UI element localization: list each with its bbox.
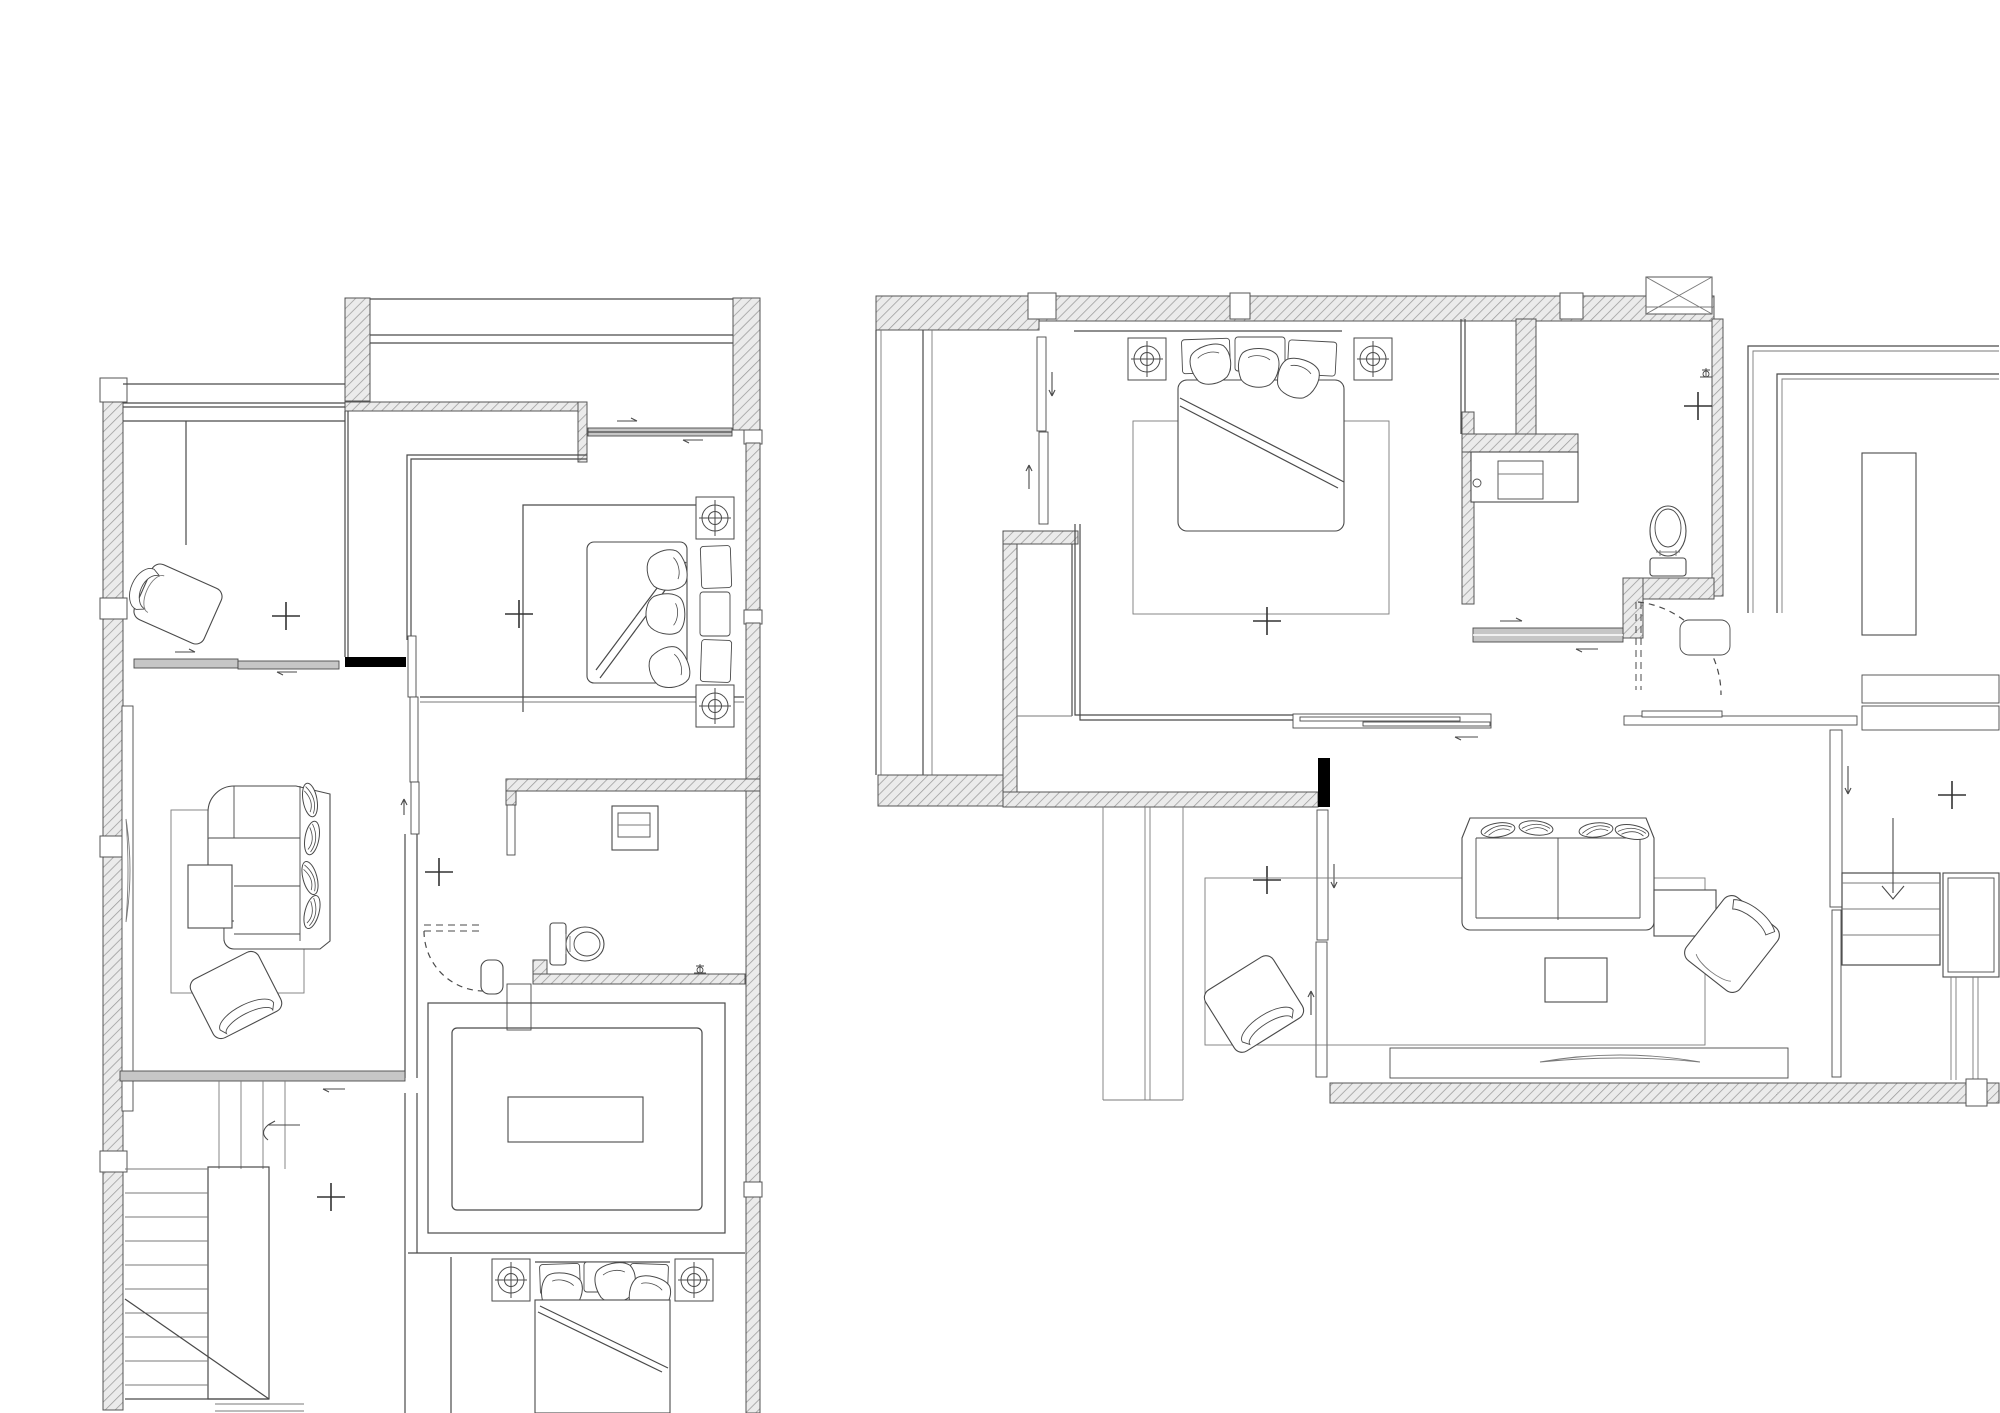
- hall-window-band: [120, 1071, 405, 1081]
- plus-mark: [1253, 866, 1281, 894]
- hall-boundary: [1075, 524, 1491, 894]
- study-room: [120, 384, 348, 657]
- toilet: [550, 923, 604, 965]
- living-room: [1201, 818, 1788, 1078]
- double-bed: [587, 542, 732, 693]
- wall-column-break: [1966, 1079, 1987, 1106]
- bathroom-right-wall: [1712, 319, 1723, 596]
- right-plan: [876, 277, 1999, 1106]
- floor-plan-drawing: [0, 0, 2000, 1413]
- top-wall: [876, 277, 1714, 330]
- pedestal-basin: [481, 960, 503, 994]
- wall-column-break: [1560, 293, 1583, 319]
- ceiling-fixture-symbol: [1128, 338, 1166, 380]
- hall-south-wall: [1003, 792, 1318, 807]
- straight-sofa: [1462, 818, 1654, 930]
- wall-column-break: [744, 610, 762, 624]
- tv-console: [1390, 1048, 1788, 1078]
- faucet-symbol: [694, 964, 706, 973]
- wall-column-break: [100, 378, 127, 402]
- big-room: [1748, 346, 1999, 730]
- bedroom-partition: [1003, 531, 1078, 792]
- study-window-band: [134, 649, 339, 675]
- plus-mark: [1938, 781, 1966, 809]
- floor-plan-page: [0, 0, 2000, 1413]
- plus-mark: [505, 600, 533, 628]
- closet-line: [407, 455, 587, 644]
- wash-basin: [612, 806, 658, 850]
- armchair: [187, 948, 285, 1041]
- toilet-room: [424, 779, 760, 1030]
- coffee-table: [1545, 958, 1607, 1002]
- wall-column-break: [100, 598, 127, 619]
- ceiling-fixture-symbol: [675, 1259, 713, 1301]
- bedroom-sliding-door: [1026, 337, 1055, 524]
- toilet: [1650, 506, 1686, 576]
- wall-column-break: [1028, 293, 1056, 319]
- wall-column-break: [1230, 293, 1250, 319]
- stairs-direction-arrow: [1882, 818, 1904, 899]
- solid-wall-segment: [345, 657, 406, 667]
- plus-mark: [425, 858, 453, 886]
- bedroom-wall-step: [578, 402, 587, 462]
- solid-wall-segment: [1318, 758, 1330, 807]
- wall-column-break: [100, 1151, 127, 1172]
- lower-double-bed: [535, 1260, 674, 1413]
- tatami-room: [408, 960, 745, 1253]
- bathroom-window: [1473, 618, 1623, 652]
- master-bedroom: [407, 455, 744, 727]
- ceiling-fixture-symbol: [696, 497, 734, 539]
- bottom-wall: [1330, 1083, 1999, 1103]
- hall-south-wall-thick: [878, 775, 1003, 806]
- plus-mark: [317, 1183, 345, 1211]
- side-desk: [1943, 873, 1999, 1080]
- left-plan: [100, 298, 762, 1413]
- armchair-2: [1201, 952, 1307, 1055]
- low-table: [508, 1097, 643, 1142]
- left-outer-wall: [103, 400, 123, 1410]
- faucet-symbol: [1700, 368, 1712, 377]
- bedroom-top-wall: [345, 402, 587, 411]
- living-top-wall: [1624, 711, 1857, 725]
- wall-stub: [507, 984, 531, 1030]
- balcony-sliding-window: [588, 418, 732, 443]
- master-bedroom: [1074, 331, 1392, 635]
- outdoor-ac-unit: [1646, 277, 1712, 314]
- plus-mark: [1684, 392, 1712, 420]
- stair-hall: [120, 1071, 405, 1411]
- bathroom-door-swing: [1636, 602, 1730, 695]
- ceiling-fixture-symbol: [492, 1259, 530, 1301]
- stairs-up: [125, 1167, 269, 1399]
- wall-column-break: [744, 430, 762, 444]
- desk-counter: [1862, 453, 1916, 635]
- stair-direction-arrow: [264, 1121, 301, 1140]
- ceiling-fixture-symbol: [696, 685, 734, 727]
- plus-mark: [1253, 607, 1281, 635]
- lower-bedroom: [451, 1257, 713, 1413]
- living-area: [122, 706, 453, 1111]
- glass-panel: [507, 805, 515, 855]
- chaise-chair: [120, 556, 225, 647]
- coffee-table: [188, 865, 232, 928]
- wall-column-break: [744, 1182, 762, 1197]
- door-mat: [1680, 620, 1730, 655]
- door-leaf: [1642, 711, 1722, 717]
- plus-mark: [272, 602, 300, 630]
- east-sliding-door: [1830, 730, 1842, 907]
- toilet-door-swing: [424, 925, 484, 991]
- vanity-with-sink: [1471, 452, 1578, 502]
- stairs-down: [1842, 818, 1940, 965]
- bathroom: [1461, 319, 1730, 695]
- double-bed: [1178, 337, 1344, 531]
- right-outer-wall: [746, 443, 760, 610]
- ceiling-fixture-symbol: [1354, 338, 1392, 380]
- corridor-walls: [405, 834, 417, 1413]
